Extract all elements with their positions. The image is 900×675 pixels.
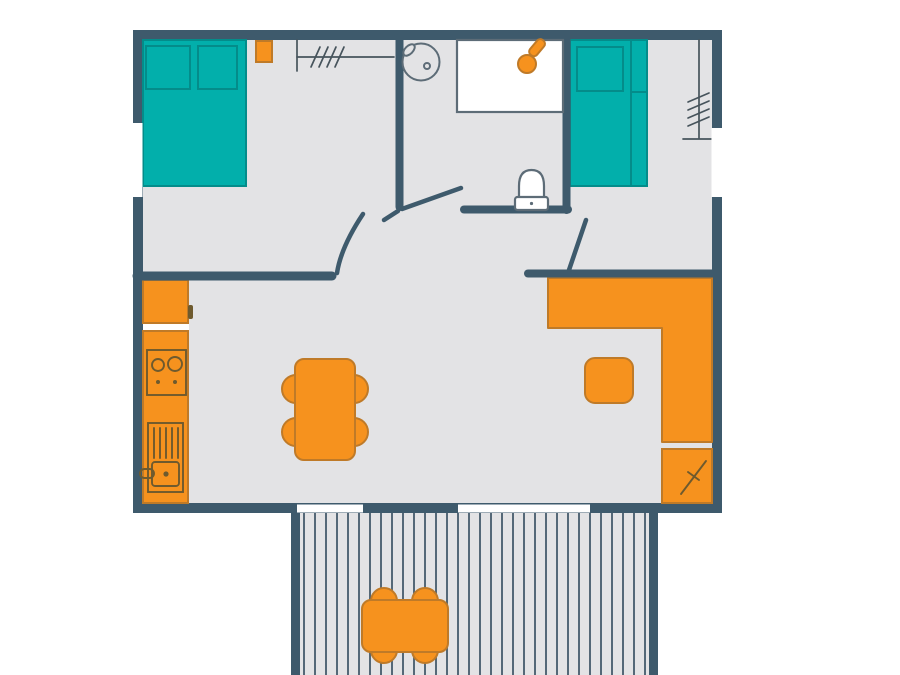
washbasin (401, 42, 439, 80)
terrace (291, 505, 658, 675)
stove-knob (173, 380, 177, 384)
window-left (131, 123, 143, 197)
shower-tray (457, 40, 563, 112)
terrace-wall-left (291, 513, 300, 675)
pillow (577, 47, 623, 91)
sink-drain (163, 471, 168, 476)
terrace-deck (300, 513, 649, 675)
toilet-button (530, 202, 533, 205)
shower (457, 38, 563, 112)
pillow (146, 46, 190, 89)
cabinet (662, 449, 712, 503)
stove-knob (156, 380, 160, 384)
dining-table-with-chairs (282, 359, 368, 460)
floor-plan (0, 0, 900, 675)
window-right (712, 128, 724, 197)
sliding-door-left (297, 505, 363, 513)
sliding-door-right (458, 505, 590, 513)
counter-gap (143, 324, 189, 331)
terrace-wall-right (649, 513, 658, 675)
shower-head (518, 55, 536, 73)
nightstand (256, 41, 272, 62)
fridge (143, 280, 188, 323)
toilet-bowl (519, 170, 544, 198)
pillow (198, 46, 237, 89)
patio-table (362, 600, 448, 652)
toilet (515, 170, 548, 210)
double-bed (143, 40, 246, 186)
fridge-handle (188, 305, 193, 319)
basin-drain (424, 63, 430, 69)
kitchen-left (140, 280, 193, 503)
single-bed (570, 40, 647, 186)
stool (585, 358, 633, 403)
dining-table (295, 359, 355, 460)
patio-table-with-chairs (362, 588, 448, 663)
storage-cabinet (662, 449, 712, 503)
